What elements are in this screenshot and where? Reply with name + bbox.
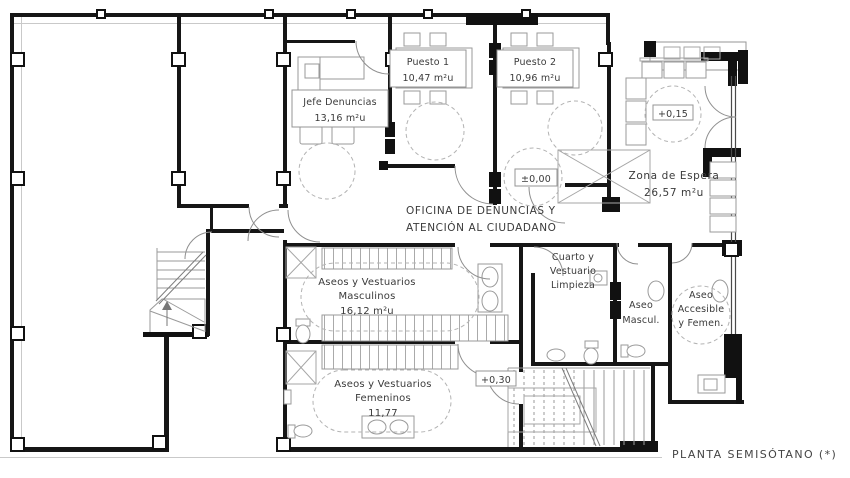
sink-vanity — [478, 264, 502, 312]
room-label-puesto-2: Puesto 2 10,96 m²u — [497, 50, 573, 87]
room-label-jefe-denuncias: Jefe Denuncias 13,16 m²u — [292, 90, 388, 127]
stairs-left — [150, 248, 206, 332]
floor-plan-drawing: Jefe Denuncias 13,16 m²u Puesto 1 10,47 … — [0, 0, 850, 478]
level-marker-oficina: ±0,00 — [515, 169, 557, 186]
room-name-line2: Accesible — [678, 304, 725, 315]
room-area: 16,12 m²u — [340, 306, 394, 317]
sink-icon — [482, 291, 498, 311]
room-name-line2: Masculinos — [338, 291, 395, 302]
room-label-zona-de-espera: Zona de Espera 26,57 m²u — [629, 170, 720, 199]
room-name: Puesto 2 — [514, 57, 557, 68]
room-label-aseo-masculino: Aseo Mascul. — [622, 300, 659, 326]
sink-vanity — [362, 416, 414, 438]
accessible-toilet-fixture — [698, 375, 725, 393]
level-value: ±0,00 — [521, 174, 551, 185]
room-name-line2: Femeninos — [355, 393, 411, 404]
sink-icon — [390, 420, 408, 434]
room-name: Jefe Denuncias — [302, 97, 377, 108]
room-label-aseos-femeninos: Aseos y Vestuarios Femeninos 11,77 — [334, 379, 431, 419]
room-label-aseos-masculinos: Aseos y Vestuarios Masculinos 16,12 m²u — [318, 277, 415, 317]
sink-icon — [648, 281, 664, 301]
room-name-line1: OFICINA DE DENUNCIAS Y — [406, 205, 556, 217]
level-value: +0,15 — [658, 109, 688, 120]
room-name-line2: Mascul. — [622, 315, 659, 326]
toilet-fixture — [296, 319, 310, 343]
room-name-line1: Aseos y Vestuarios — [318, 277, 415, 288]
room-area: 11,77 — [368, 408, 398, 419]
room-area: 26,57 m²u — [644, 187, 704, 199]
monitor-icon — [305, 64, 319, 78]
room-label-oficina-denuncias: OFICINA DE DENUNCIAS Y ATENCIÓN AL CIUDA… — [406, 205, 557, 234]
room-area: 10,96 m²u — [509, 73, 560, 84]
floor-plan-canvas: Jefe Denuncias 13,16 m²u Puesto 1 10,47 … — [0, 0, 850, 478]
toilet-fixture — [288, 425, 312, 438]
sink-icon — [482, 267, 498, 287]
room-name-line1: Aseos y Vestuarios — [334, 379, 431, 390]
room-label-puesto-1: Puesto 1 10,47 m²u — [390, 50, 466, 87]
room-area: 10,47 m²u — [402, 73, 453, 84]
room-name-line1: Aseo — [689, 290, 713, 301]
room-name-line1: Aseo — [629, 300, 653, 311]
toilet-fixture — [584, 341, 598, 364]
sink-icon — [547, 349, 565, 361]
room-name-line3: Limpieza — [551, 280, 595, 291]
room-name-line2: Vestuario — [550, 266, 596, 277]
room-name: Zona de Espera — [629, 170, 720, 182]
room-name-line1: Cuarto y — [552, 252, 594, 263]
room-label-cuarto-limpieza: Cuarto y Vestuario Limpieza — [550, 252, 596, 291]
plan-title: PLANTA SEMISÓTANO (*) — [672, 448, 837, 461]
room-name: Puesto 1 — [407, 57, 450, 68]
stairs-direction-arrow — [162, 301, 172, 326]
room-area: 13,16 m²u — [314, 113, 365, 124]
hatched-shaft — [286, 351, 316, 384]
urinal-icon — [284, 390, 291, 404]
level-marker-escalera: +0,30 — [476, 371, 516, 386]
furniture-zona-espera — [626, 47, 736, 232]
level-value: +0,30 — [481, 375, 511, 386]
hatched-shaft — [286, 247, 316, 278]
sink-icon — [368, 420, 386, 434]
toilet-fixture — [621, 345, 645, 357]
room-name-line3: y Femen. — [678, 318, 723, 329]
level-marker-espera: +0,15 — [653, 105, 693, 120]
stairs-bottom — [508, 368, 650, 447]
room-name-line2: ATENCIÓN AL CIUDADANO — [406, 221, 557, 234]
sink-icon — [712, 280, 728, 302]
